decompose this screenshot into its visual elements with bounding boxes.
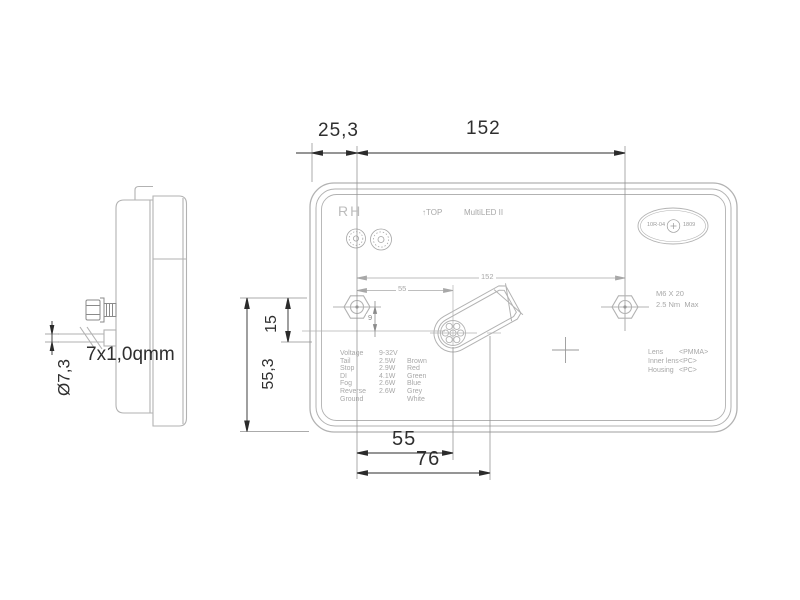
extension-lines bbox=[45, 143, 625, 480]
cable-spec-label: 7x1,0qmm bbox=[86, 345, 175, 364]
dim-side-upper: 15 bbox=[264, 304, 280, 344]
side-view bbox=[58, 187, 187, 427]
dim-side-lower: 55,3 bbox=[261, 350, 277, 398]
e-mark-circle-icon bbox=[667, 220, 680, 233]
stamp-left-text: 10R-04 bbox=[647, 223, 665, 229]
table-row: DI4.1WGreen bbox=[340, 373, 440, 381]
dimension-lines bbox=[50, 151, 625, 476]
mounting-stud-icon bbox=[86, 298, 116, 322]
table-row: Stop2.9WRed bbox=[340, 365, 440, 373]
connector-housing bbox=[427, 282, 523, 358]
lamp-technical-drawing: 25,3 152 55 76 15 55,3 Ø7,3 7x1,0qmm 152… bbox=[0, 0, 800, 600]
top-orientation-marker: ↑TOP bbox=[422, 209, 442, 217]
torque-spec-label: 2.5 Nm Max bbox=[656, 301, 699, 309]
materials-list: Lens<PMMA> Inner lens<PC> Housing<PC> bbox=[648, 349, 718, 376]
list-item: Housing<PC> bbox=[648, 367, 718, 376]
dim-top-offset: 25,3 bbox=[318, 121, 359, 140]
table-row: Reverse2.6WGrey bbox=[340, 388, 440, 396]
table-row: Fog2.6WBlue bbox=[340, 380, 440, 388]
table-row: Tail2.5WBrown bbox=[340, 358, 440, 366]
dim-cable-diameter: Ø7,3 bbox=[56, 348, 73, 408]
center-cross bbox=[552, 337, 579, 363]
list-item: Inner lens<PC> bbox=[648, 358, 718, 367]
wiring-spec-table: Voltage9-32V Tail2.5WBrown Stop2.9WRed D… bbox=[340, 350, 440, 403]
approval-mark-icon bbox=[347, 229, 366, 248]
model-name-label: MultiLED II bbox=[464, 209, 503, 217]
dim-bottom-connector: 55 bbox=[392, 429, 416, 449]
dim-hole-spacing: 152 bbox=[466, 119, 501, 138]
list-item: Lens<PMMA> bbox=[648, 349, 718, 358]
stud-spec-label: M6 X 20 bbox=[656, 290, 684, 298]
hand-version-label: RH bbox=[338, 204, 362, 218]
reference-lines bbox=[302, 285, 501, 346]
dim-inner-connector: 55 bbox=[396, 285, 408, 293]
stamp-right-text: 1809 bbox=[683, 223, 695, 229]
table-row: Voltage9-32V bbox=[340, 350, 440, 358]
dim-hole-drop: 9 bbox=[366, 314, 374, 322]
table-row: GroundWhite bbox=[340, 396, 440, 404]
hole-crosshairs bbox=[333, 281, 649, 331]
dim-inner-spacing: 152 bbox=[479, 273, 496, 281]
dim-bottom-tip: 76 bbox=[416, 449, 440, 469]
approval-mark-icon bbox=[371, 229, 392, 250]
